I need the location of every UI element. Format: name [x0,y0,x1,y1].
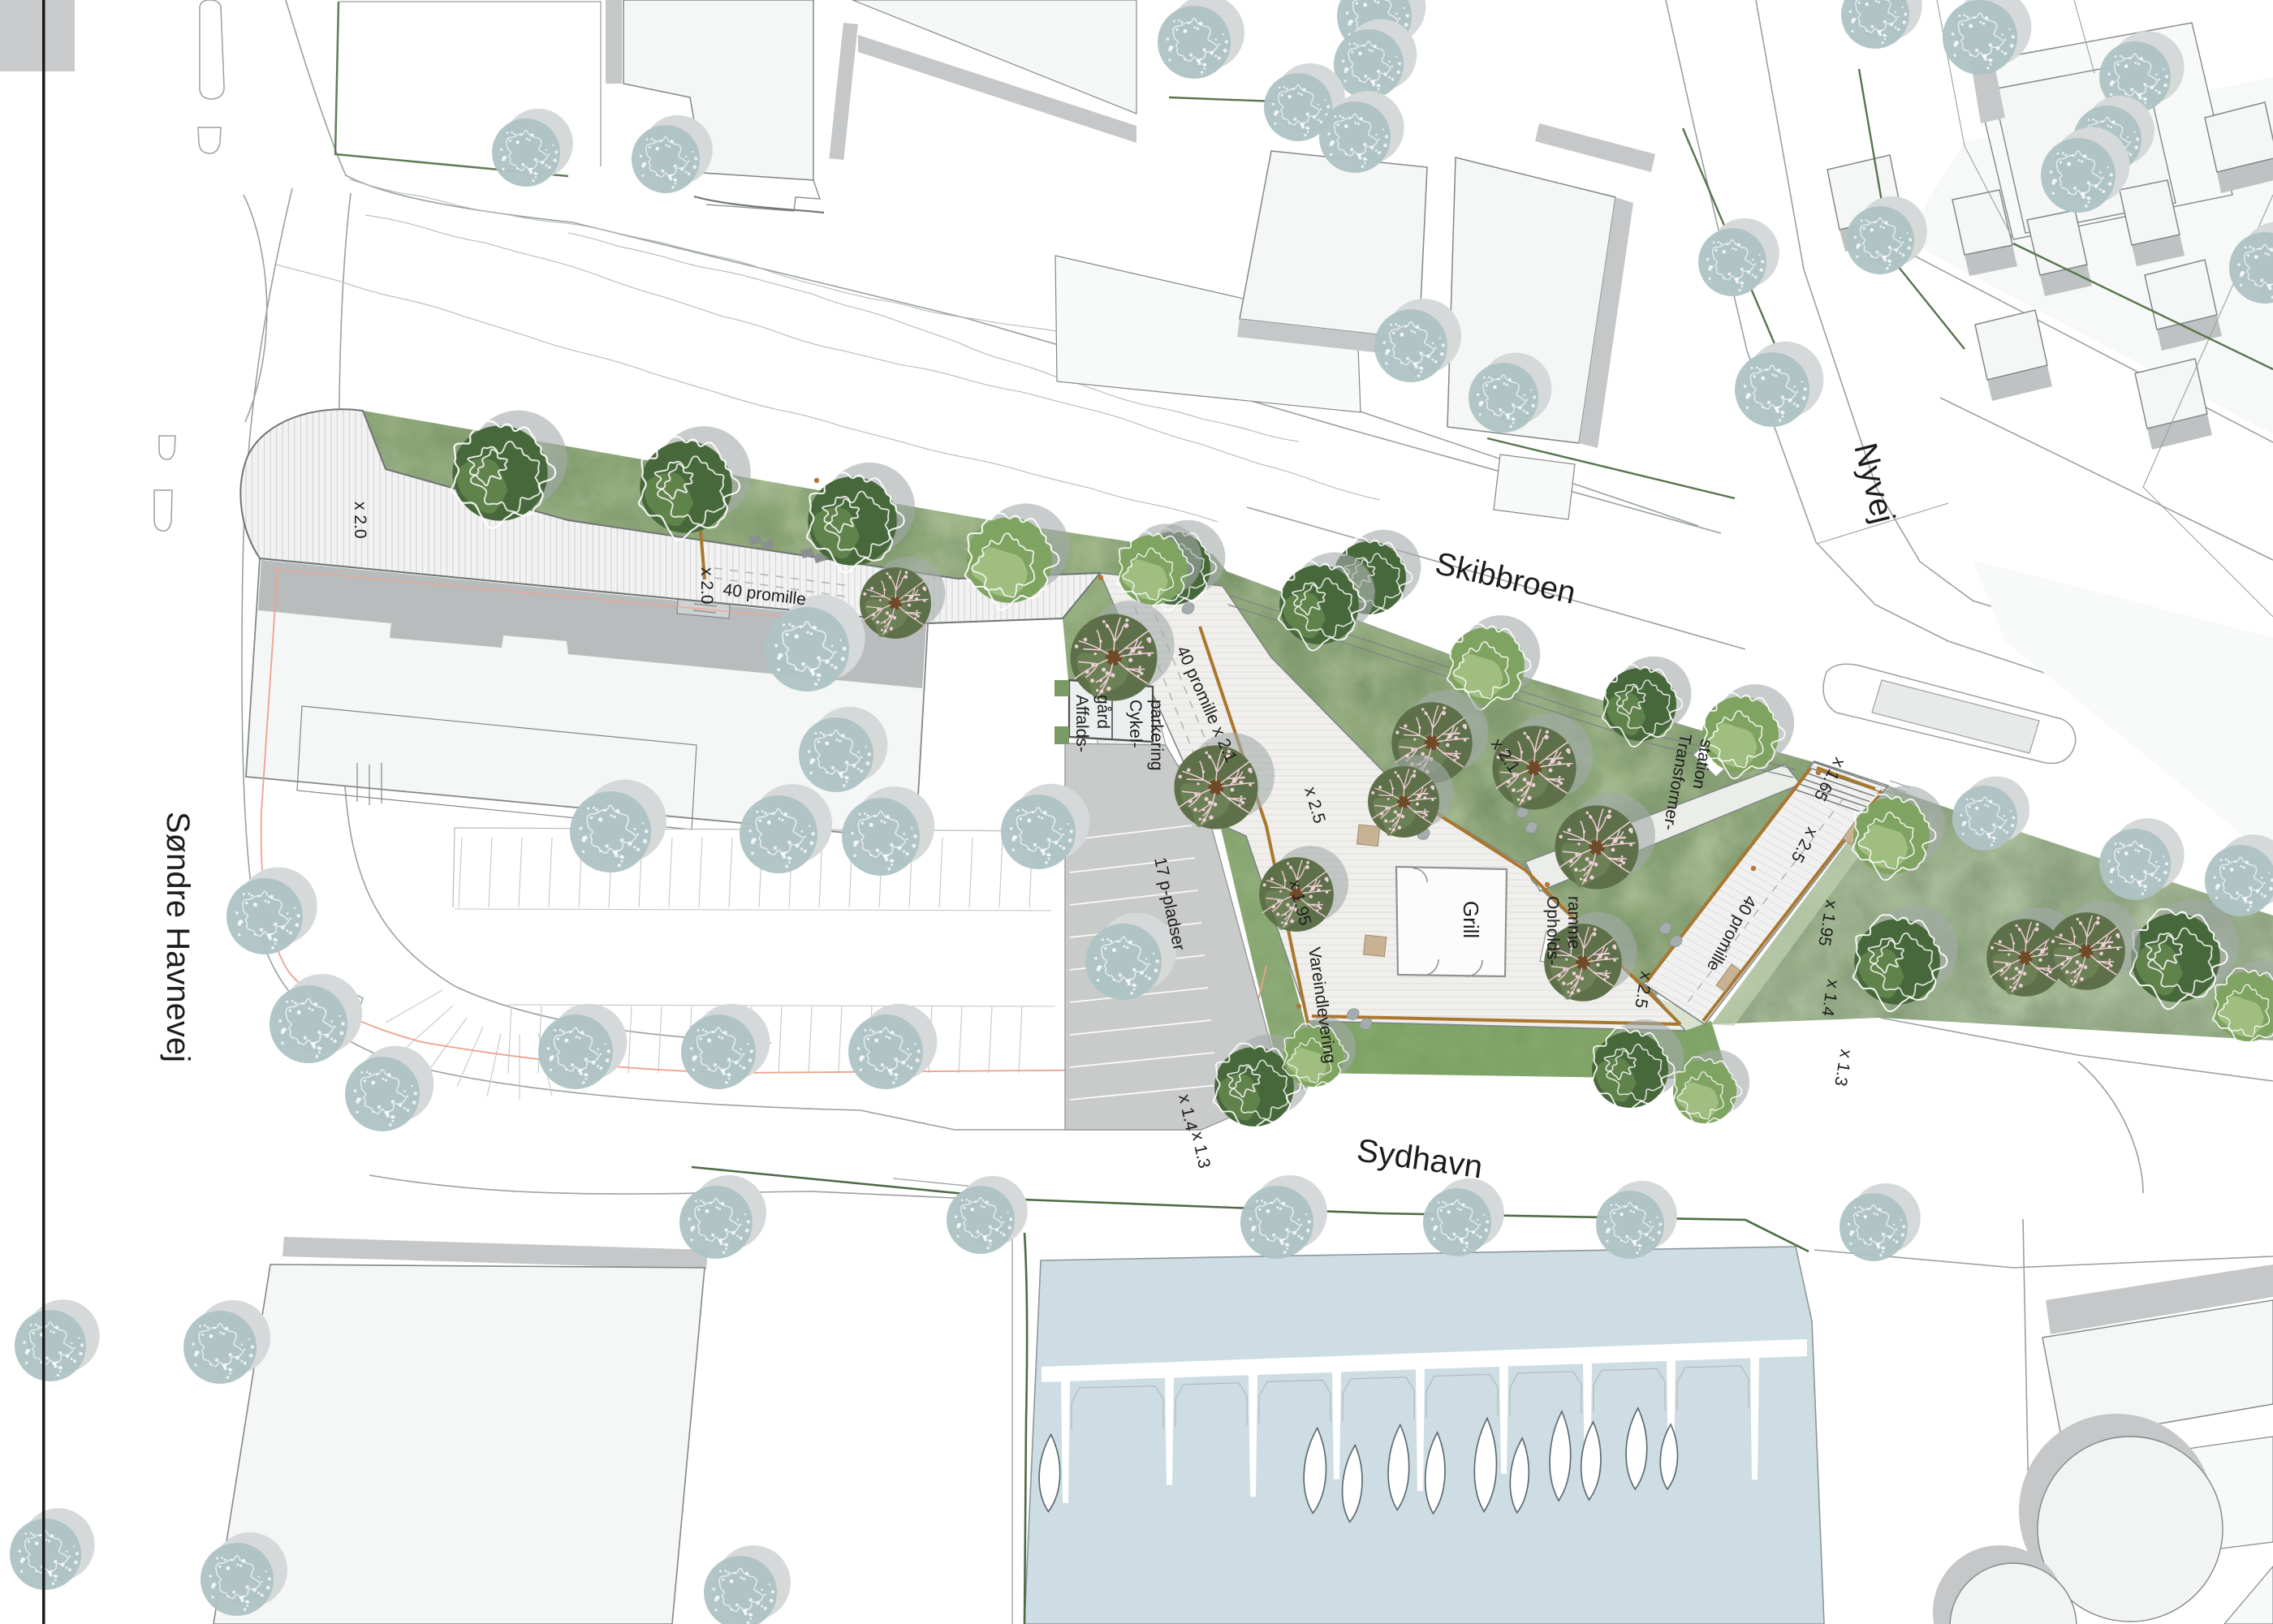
svg-text:parkering: parkering [1147,700,1166,771]
svg-text:Søndre Havnevej: Søndre Havnevej [160,812,196,1062]
svg-text:gård: gård [1093,695,1112,729]
svg-text:ramme: ramme [1564,896,1583,949]
svg-text:x 2.0: x 2.0 [697,567,716,605]
svg-text:x 2.0: x 2.0 [351,502,369,539]
svg-text:Opholds-: Opholds- [1543,896,1562,965]
svg-text:Affalds-: Affalds- [1072,695,1091,752]
svg-text:Grill: Grill [1459,901,1483,938]
svg-text:Cykel-: Cykel- [1126,700,1145,748]
